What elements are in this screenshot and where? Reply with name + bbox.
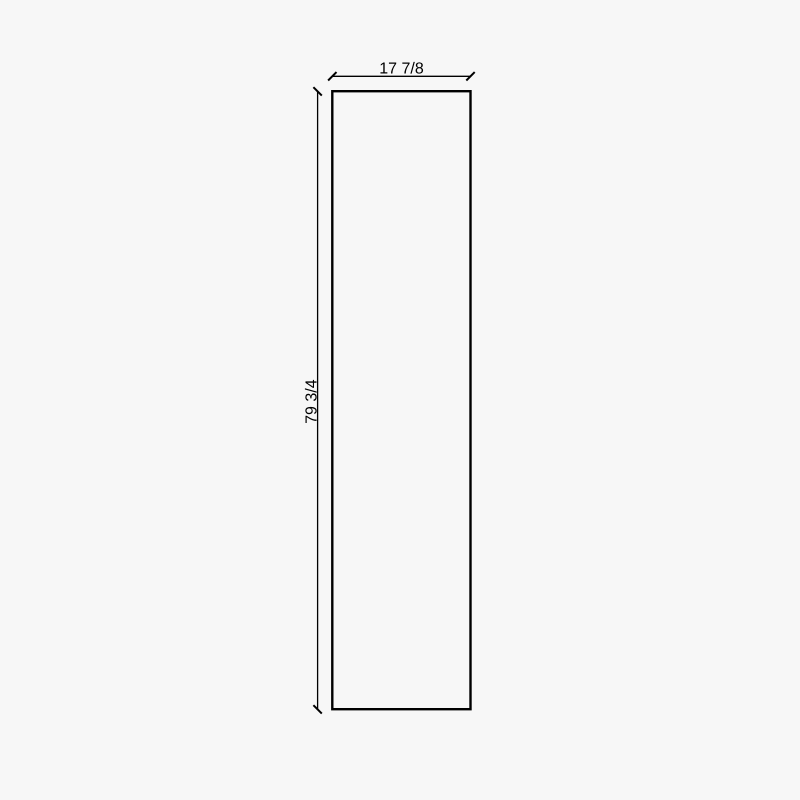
svg-text:79 3/4: 79 3/4	[303, 379, 320, 424]
svg-text:17 7/8: 17 7/8	[379, 61, 424, 78]
